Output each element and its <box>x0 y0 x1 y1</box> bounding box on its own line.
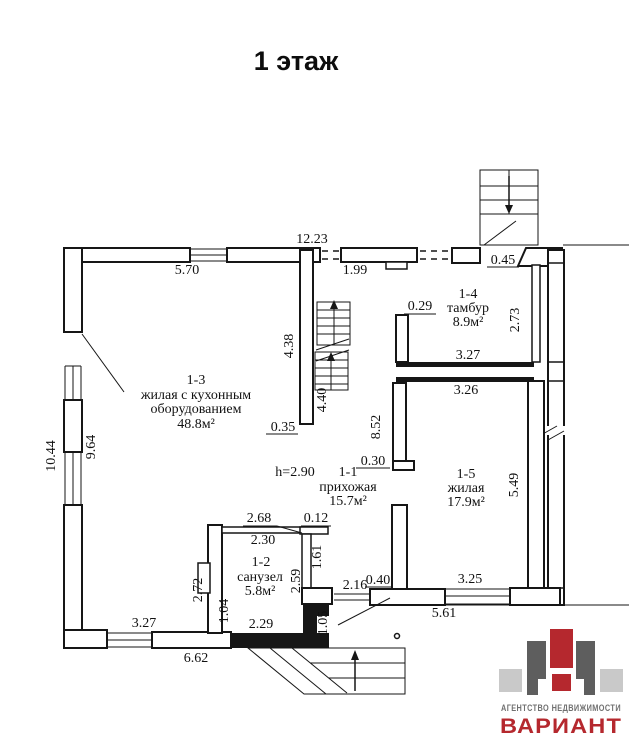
dim-1-04: 1.04 <box>217 599 232 624</box>
room-label-1-1: 1-1 прихожая 15.7м² <box>319 465 377 509</box>
dim-0-35: 0.35 <box>271 420 296 435</box>
dimension-labels: 12.23 5.70 1.99 0.45 2.73 0.29 3.27 3.26… <box>44 232 523 666</box>
dim-0-12: 0.12 <box>304 511 329 526</box>
dim-10-44: 10.44 <box>44 440 59 472</box>
door-swing-hall <box>338 598 390 625</box>
dim-2-30: 2.30 <box>251 533 276 548</box>
dim-2-68: 2.68 <box>247 511 272 526</box>
arrow-down-icon <box>505 205 513 214</box>
floor-plan-page: 1 этаж <box>0 0 631 750</box>
dim-3-27-a: 3.27 <box>456 348 481 363</box>
room-1-5-name: жилая <box>447 481 485 496</box>
room-1-5-area: 17.9м² <box>447 495 485 510</box>
dim-2-59: 2.59 <box>289 569 304 594</box>
arrow-up-icon <box>351 650 359 660</box>
room-1-1-area: 15.7м² <box>329 494 367 509</box>
room-1-3-name1: жилая с кухонным <box>140 388 251 403</box>
window-left-1 <box>65 366 81 400</box>
room-label-1-4: 1-4 тамбур 8.9м² <box>447 287 489 330</box>
page-title: 1 этаж <box>254 46 339 76</box>
dim-12-23: 12.23 <box>296 232 328 247</box>
logo-notch <box>576 679 584 695</box>
dim-3-26: 3.26 <box>454 383 479 398</box>
room-1-2-area: 5.8м² <box>245 584 276 599</box>
logo-block-red-top <box>550 629 573 668</box>
window-bottom-right <box>445 589 510 604</box>
room-label-1-5: 1-5 жилая 17.9м² <box>447 467 485 510</box>
room-1-4-number: 1-4 <box>459 287 478 302</box>
room-1-3-name2: оборудованием <box>151 402 242 417</box>
dim-1-99: 1.99 <box>343 263 368 278</box>
logo-line-variant: ВАРИАНТ <box>500 715 622 738</box>
dim-3-27-b: 3.27 <box>132 616 157 631</box>
room-1-5-number: 1-5 <box>457 467 476 482</box>
door-swing-entrance <box>484 221 516 245</box>
window-bottom-left <box>106 633 152 647</box>
room-1-4-name: тамбур <box>447 301 489 316</box>
window-top <box>190 249 227 261</box>
column-marker <box>395 634 400 639</box>
dim-0-30: 0.30 <box>361 454 386 469</box>
room-1-4-area: 8.9м² <box>453 315 484 330</box>
room-label-1-3: 1-3 жилая с кухонным оборудованием 48.8м… <box>140 373 251 432</box>
room-1-2-name: санузел <box>237 570 283 585</box>
entrance-porch-top <box>480 170 538 245</box>
room-1-3-area: 48.8м² <box>177 417 215 432</box>
dim-4-38: 4.38 <box>282 334 297 359</box>
room-label-1-2: 1-2 санузел 5.8м² <box>237 555 283 599</box>
dim-5-49: 5.49 <box>507 473 522 498</box>
dim-9-64: 9.64 <box>84 435 99 460</box>
dim-2-73: 2.73 <box>508 308 523 333</box>
dim-2-16: 2.16 <box>343 578 368 593</box>
dim-1-05: 1.05 <box>316 611 331 636</box>
dim-4-40: 4.40 <box>315 388 330 413</box>
floor-plan-svg: 1 этаж <box>0 0 631 750</box>
room-1-1-number: 1-1 <box>339 465 358 480</box>
dim-0-40: 0.40 <box>366 573 391 588</box>
dim-6-62: 6.62 <box>184 651 209 666</box>
interior-walls <box>82 315 560 625</box>
logo-block-light-left <box>499 669 522 692</box>
dim-0-29: 0.29 <box>408 299 433 314</box>
window-left-2 <box>65 452 81 505</box>
room-1-1-name: прихожая <box>319 480 377 495</box>
room-1-2-number: 1-2 <box>252 555 271 570</box>
dim-3-25: 3.25 <box>458 572 483 587</box>
dim-2-72: 2.72 <box>191 578 206 603</box>
room-1-3-number: 1-3 <box>187 373 206 388</box>
dim-2-29: 2.29 <box>249 617 274 632</box>
arrow-up-icon <box>330 300 338 309</box>
porch-steps-bottom <box>248 648 405 694</box>
dim-0-45: 0.45 <box>491 253 516 268</box>
dim-1-61: 1.61 <box>310 545 325 570</box>
dim-8-52: 8.52 <box>369 415 384 440</box>
logo-block-red-bottom <box>552 674 571 691</box>
dim-5-61: 5.61 <box>432 606 457 621</box>
height-note: h=2.90 <box>275 465 314 480</box>
logo-block-light-right <box>600 669 623 692</box>
logo-notch <box>538 679 546 695</box>
agency-logo: АГЕНТСТВО НЕДВИЖИМОСТИ ВАРИАНТ <box>499 629 623 738</box>
door-swing-living <box>82 334 124 392</box>
dim-5-70: 5.70 <box>175 263 200 278</box>
logo-line-agency: АГЕНТСТВО НЕДВИЖИМОСТИ <box>501 703 621 713</box>
